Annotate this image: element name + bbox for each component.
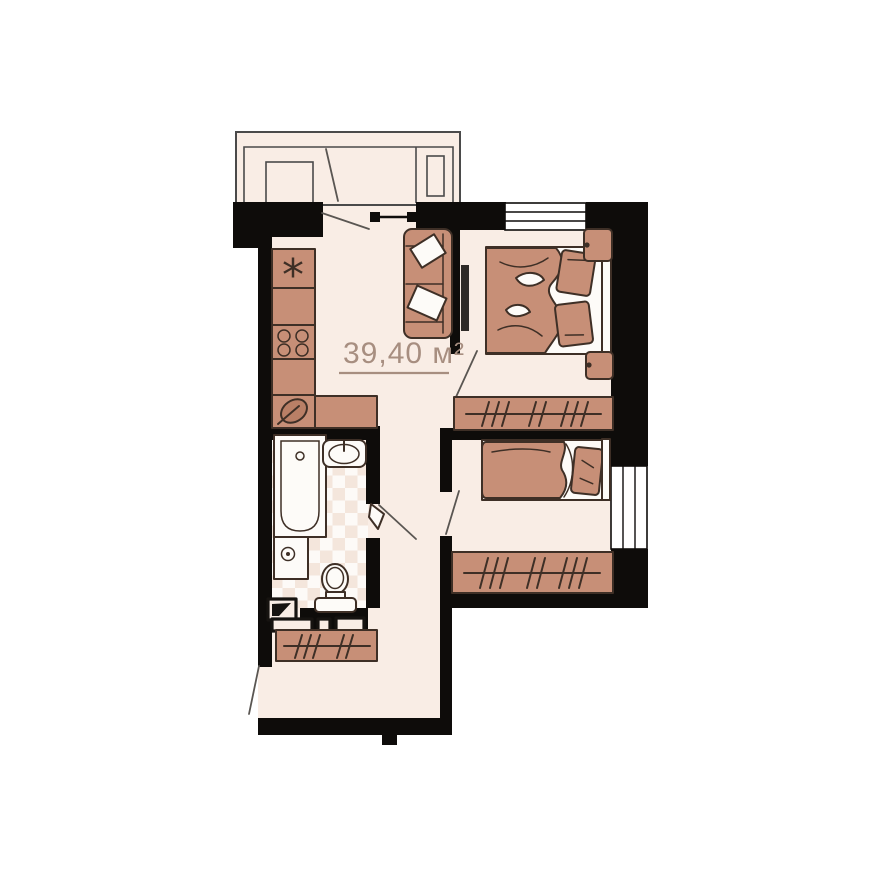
- duvet-fold: [506, 305, 530, 316]
- kitchen-counter-return: [315, 396, 377, 428]
- duvet-fold: [516, 273, 544, 286]
- kitchen-counter: [272, 288, 315, 325]
- headboard: [602, 439, 610, 500]
- living-room: [404, 229, 452, 338]
- washing-machine: [274, 537, 308, 579]
- wall-segment: [446, 592, 615, 608]
- wall-segment: [233, 202, 259, 248]
- kitchen-counter: [272, 359, 315, 395]
- tv: [461, 265, 469, 331]
- single-bed: [482, 439, 610, 500]
- floor-plan-page: *: [0, 0, 880, 880]
- hall-cabinet-mirror: [268, 599, 296, 620]
- nightstand: [584, 229, 612, 261]
- hall-wardrobe: [276, 630, 377, 661]
- wall-segment: [440, 536, 452, 735]
- duvet: [482, 442, 566, 498]
- kids-wardrobe: [452, 552, 613, 593]
- wall-segment: [258, 718, 452, 735]
- wall-segment: [366, 538, 380, 608]
- bedroom-wardrobe: [454, 397, 613, 430]
- entrance-door-swing: [249, 666, 259, 714]
- duvet: [486, 248, 562, 353]
- kids-room-window: [611, 466, 647, 549]
- wall-segment: [440, 428, 452, 492]
- floor-plan: *: [0, 0, 880, 880]
- bed-pillow: [571, 447, 604, 496]
- bathtub: [274, 435, 326, 537]
- area-label-text: 39,40 м²: [343, 337, 465, 370]
- bed-pillow: [555, 301, 594, 347]
- sofa: [404, 229, 452, 338]
- kitchen-sink: [272, 394, 315, 428]
- wall-segment: [416, 202, 506, 230]
- bathroom-sink: [323, 440, 366, 467]
- wall-segment: [586, 202, 648, 230]
- area-label: 39,40 м²: [339, 337, 465, 373]
- wall-segment: [611, 226, 648, 466]
- entrance-door-tab: [382, 733, 397, 745]
- bedroom-window: [505, 203, 586, 230]
- kitchen-stove: [272, 325, 315, 359]
- nightstand: [586, 352, 613, 379]
- wall-segment: [366, 426, 380, 504]
- wall-segment: [611, 549, 648, 608]
